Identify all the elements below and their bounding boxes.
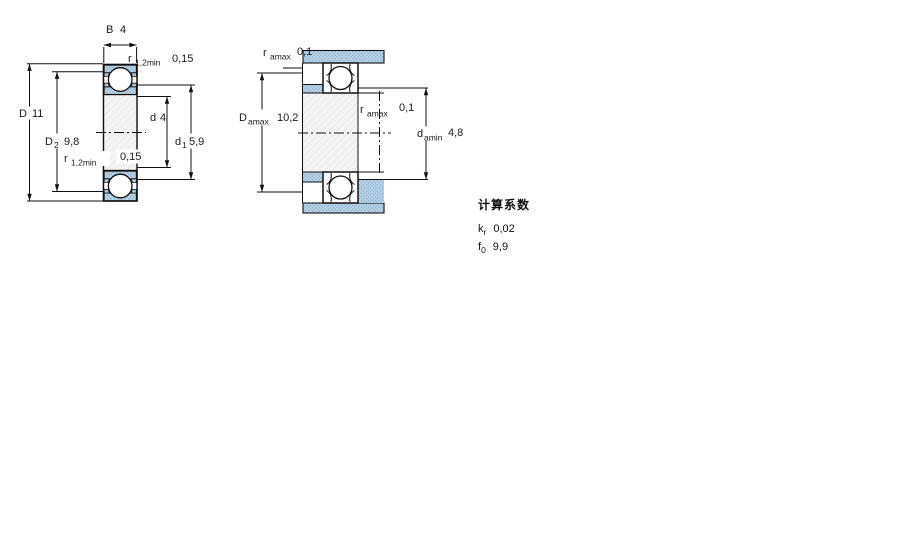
bearing-dimension-drawing: B 4 D 11 D 2 9,8 — [0, 0, 900, 560]
factor-f0-subscript: 0 — [481, 245, 486, 255]
damin-label: d — [417, 128, 423, 140]
bearing-ball — [108, 68, 132, 92]
dimension-B-value: 4 — [120, 24, 126, 36]
dimension-d-label: d — [150, 112, 156, 124]
bearing-mounting-figure: r amax 0,1 r amax 0,1 D amax 10,2 — [237, 46, 464, 213]
dimension-ra-mid: r amax 0,1 — [360, 102, 414, 119]
ra-top-subscript: amax — [270, 52, 292, 62]
damin-subscript: amin — [424, 133, 443, 143]
r12-bottom-subscript: 1,2min — [71, 158, 97, 168]
shaft-section-right — [359, 180, 385, 203]
ra-top-label: r — [263, 47, 267, 59]
factor-kr-value: 0,02 — [493, 223, 514, 235]
r12-top-value: 0,15 — [172, 53, 193, 65]
mounted-bearing-top — [323, 63, 358, 93]
shaft-shoulder-bottom — [303, 172, 324, 182]
calculation-factors-block: 计算系数 kr0,02 f09,9 — [478, 196, 638, 259]
top-ball-assembly — [104, 65, 138, 95]
ra-top-value: 0,1 — [297, 46, 312, 58]
factor-f0-row: f09,9 — [478, 241, 638, 255]
bearing-cross-section-figure: B 4 D 11 D 2 9,8 — [16, 24, 206, 201]
ra-mid-value: 0,1 — [399, 102, 414, 114]
housing-section-top — [303, 51, 384, 64]
dimension-d1-label: d — [175, 136, 181, 148]
dimension-ra-top: r amax 0,1 — [263, 46, 312, 68]
bearing-drawing-page: B 4 D 11 D 2 9,8 — [0, 0, 900, 560]
Damax-value: 10,2 — [277, 112, 298, 124]
dimension-d1: d 1 5,9 — [137, 85, 206, 180]
dimension-D-label: D — [19, 108, 27, 120]
bearing-ball — [329, 67, 352, 90]
calculation-factors-title: 计算系数 — [478, 196, 638, 213]
Damax-subscript: amax — [248, 117, 270, 127]
housing-section-bottom — [303, 203, 384, 213]
dimension-B-label: B — [106, 24, 113, 36]
factor-kr-subscript: r — [484, 227, 487, 237]
r12-bottom-value: 0,15 — [120, 151, 141, 163]
dimension-d1-value: 5,9 — [189, 136, 204, 148]
damin-value: 4,8 — [448, 127, 463, 139]
ra-mid-label: r — [360, 104, 364, 116]
dimension-D: D 11 — [16, 64, 103, 201]
Damax-label: D — [239, 112, 247, 124]
mounted-bearing-bottom — [323, 172, 358, 203]
bottom-ball-assembly — [104, 171, 138, 202]
dimension-B: B 4 — [104, 24, 137, 63]
dimension-r12-top: r 1,2min 0,15 — [128, 53, 193, 68]
dimension-D2-subscript: 2 — [54, 140, 59, 150]
r12-top-subscript: 1,2min — [135, 58, 161, 68]
ra-mid-subscript: amax — [367, 109, 389, 119]
dimension-d-value: 4 — [160, 112, 166, 124]
factor-f0-value: 9,9 — [493, 241, 508, 253]
dimension-D2-label: D — [45, 136, 53, 148]
bearing-ball — [108, 174, 132, 198]
dimension-Damax: D amax 10,2 — [237, 73, 303, 192]
bearing-ball — [329, 176, 352, 199]
r12-bottom-label: r — [64, 153, 68, 165]
dimension-d1-subscript: 1 — [182, 140, 187, 150]
dimension-D2: D 2 9,8 — [43, 72, 104, 192]
factor-kr-row: kr0,02 — [478, 223, 638, 237]
dimension-D-value: 11 — [32, 108, 43, 120]
r12-top-label: r — [128, 53, 132, 65]
shaft-shoulder-top — [303, 85, 324, 94]
dimension-D2-value: 9,8 — [64, 136, 79, 148]
